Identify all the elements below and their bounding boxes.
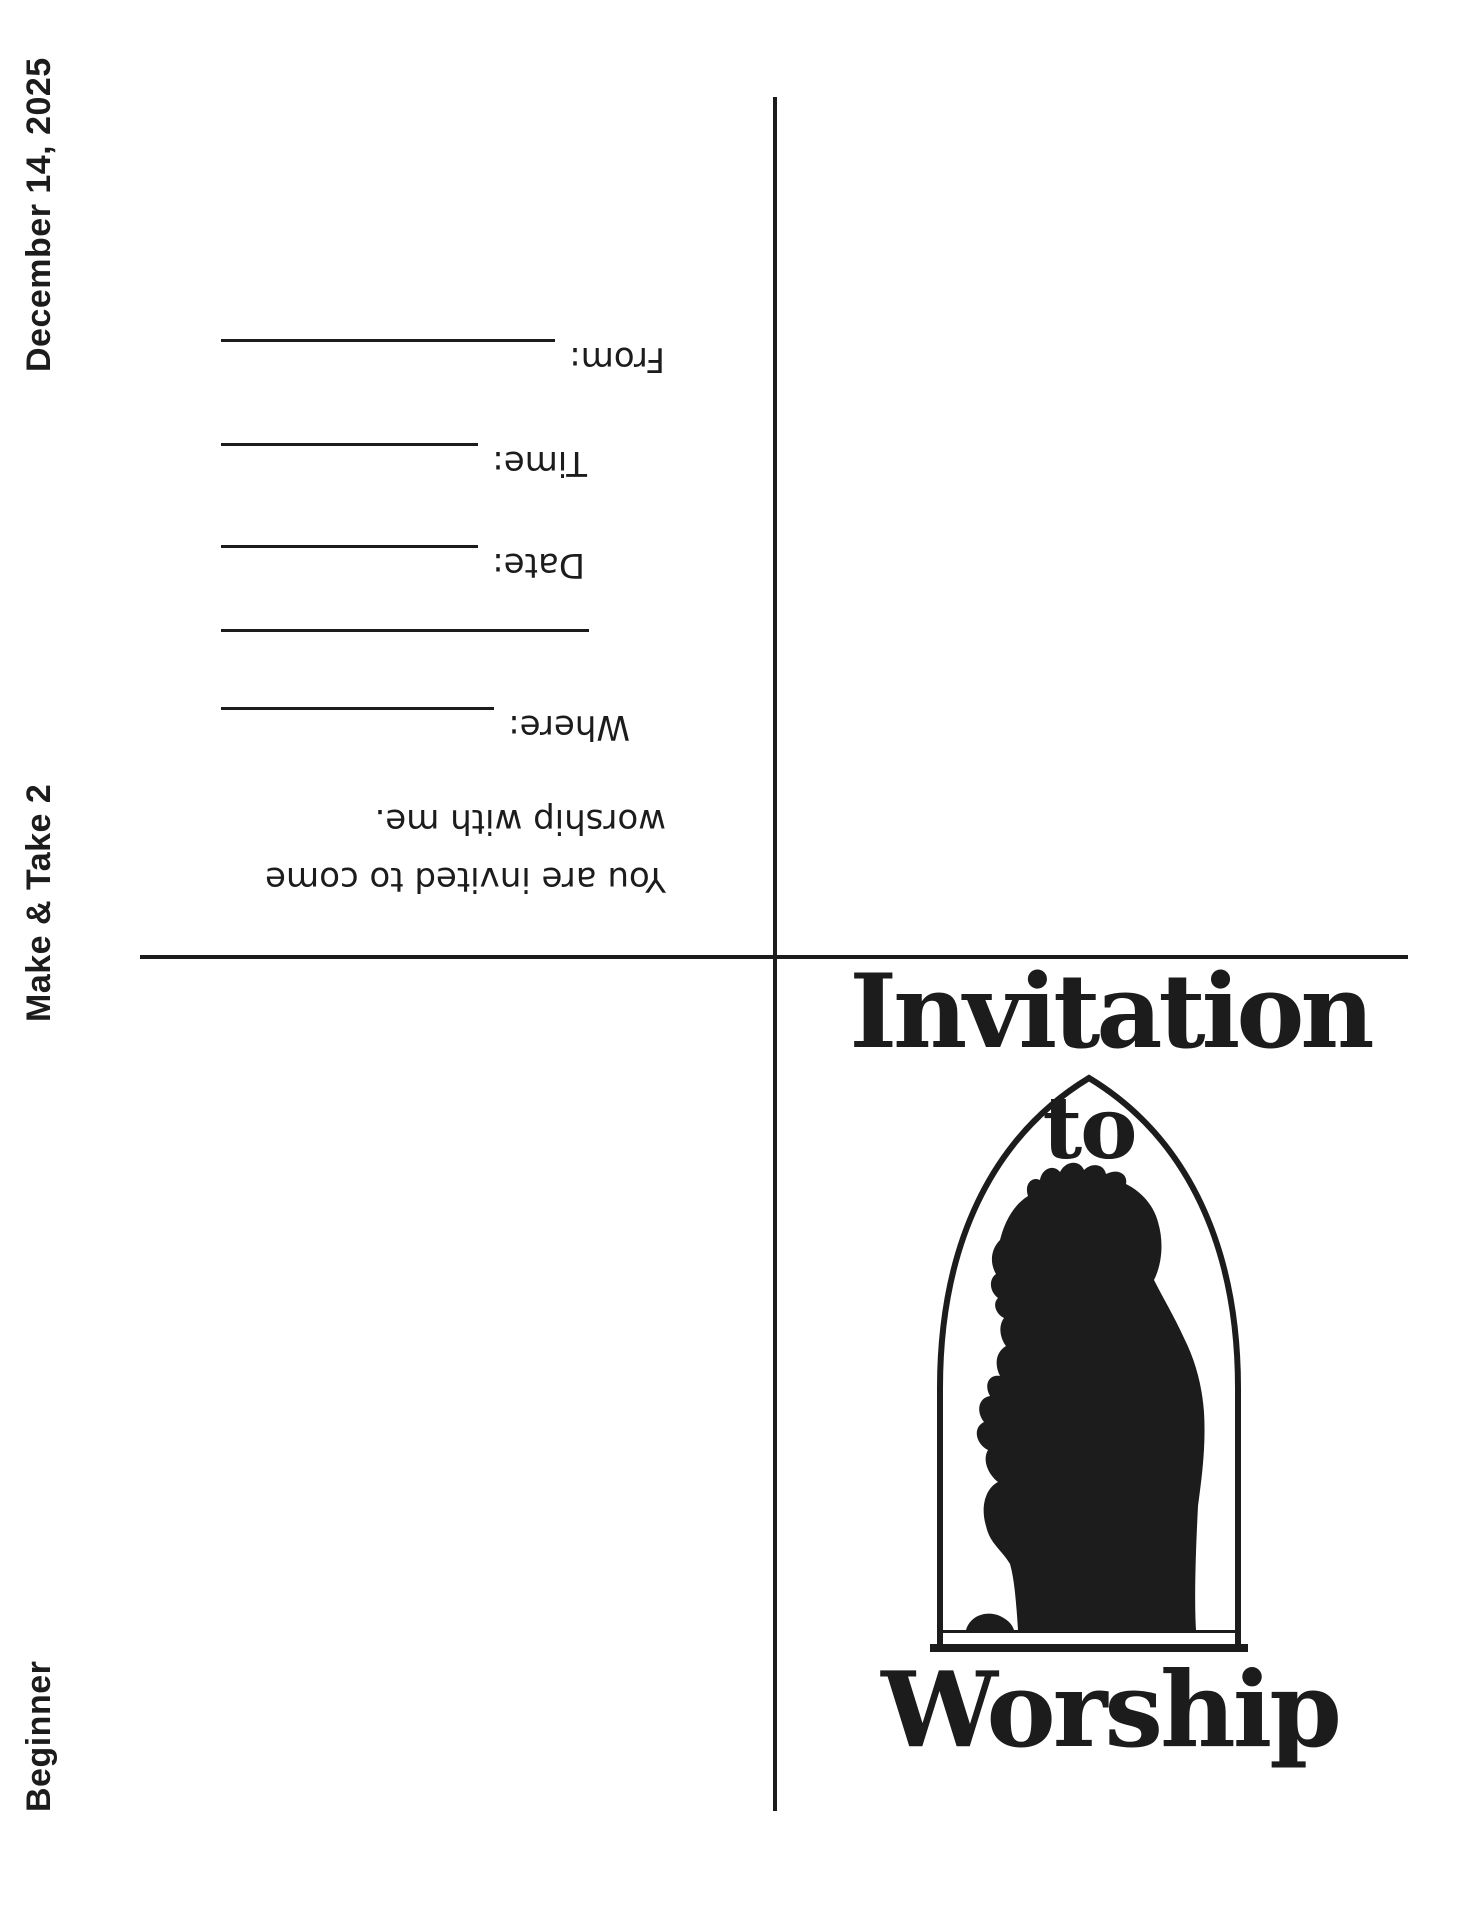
field-label-from: From: [555,339,665,379]
field-underline-where [221,707,494,750]
margin-label-date: December 14, 2025 [20,57,59,372]
page-root: { "page": { "margin_labels": { "date": "… [0,0,1484,1920]
invite-text-line1: You are invited to come [265,850,666,908]
invite-text-line2: worship with me. [265,792,666,850]
field-row-time: Time: [221,443,587,486]
field-label-date: Date: [478,545,585,585]
front-title-worship: Worship [800,1648,1420,1771]
front-title-to: to [930,1078,1248,1179]
field-underline-from [221,339,555,382]
margin-label-level: Beginner [20,1661,59,1812]
front-title-invitation: Invitation [800,952,1420,1072]
field-row-date: Date: [221,545,585,588]
card-back-form: You are invited to come worship with me.… [213,328,672,908]
field-underline-date [221,545,478,588]
field-label-where: Where: [494,707,630,747]
invite-text: You are invited to come worship with me. [265,792,666,908]
margin-label-series: Make & Take 2 [20,784,59,1022]
field-row-where: Where: [221,707,630,750]
field-row-from: From: [221,339,665,382]
field-underline-extra [221,629,589,632]
field-underline-time [221,443,478,486]
fold-line-vertical [773,97,777,1811]
field-label-time: Time: [478,443,587,483]
